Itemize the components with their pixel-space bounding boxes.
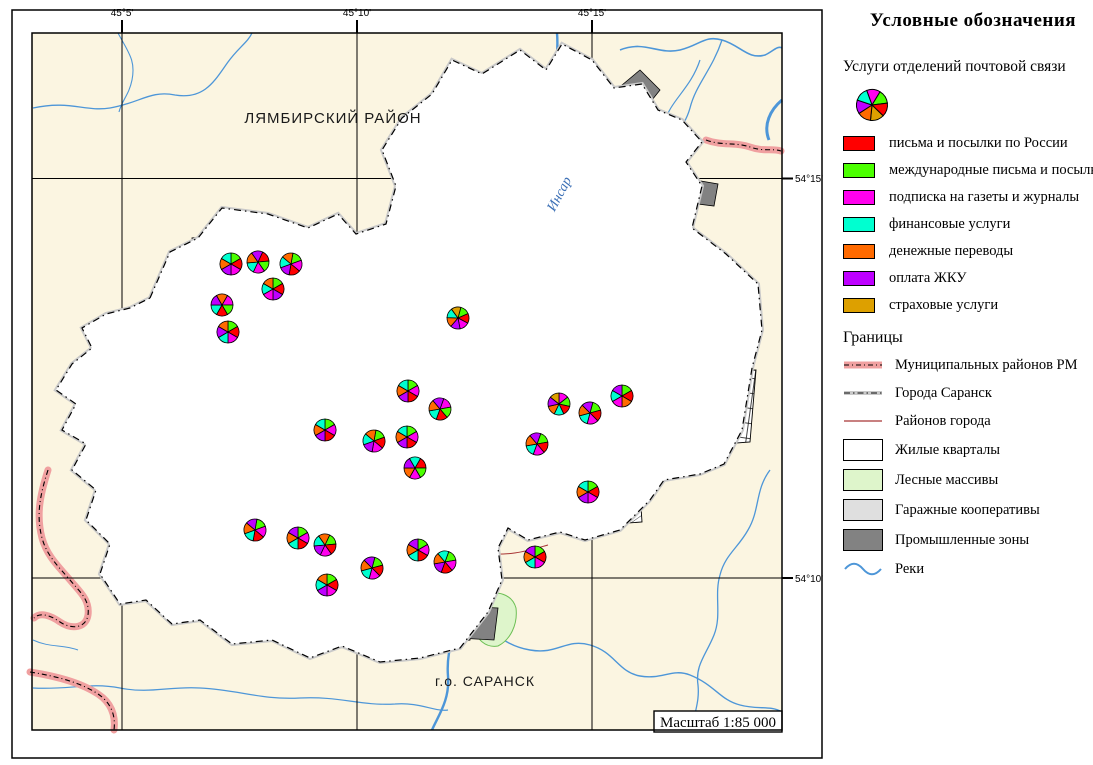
lon-label-3: 45°15' (578, 8, 606, 19)
postal-pie-symbol[interactable] (314, 419, 336, 441)
legend-item-rivers: Реки (843, 559, 1093, 579)
legend-item-subscriptions: подписка на газеты и журналы (843, 190, 1093, 205)
postal-pie-symbol[interactable] (247, 251, 269, 273)
legend-item-residential: Жилые кварталы (843, 439, 1093, 461)
map-canvas[interactable]: ЛЯМБИРСКИЙ РАЙОН г.о. САРАНСК Инсар Масш… (0, 0, 827, 765)
postal-pie-symbol[interactable] (363, 430, 385, 452)
legend-item-district-lines: Районов города (843, 411, 1093, 431)
color-swatch (843, 190, 875, 205)
color-swatch (843, 244, 875, 259)
postal-pie-symbol[interactable] (526, 433, 548, 455)
residential-swatch (843, 439, 883, 461)
postal-pie-symbol[interactable] (316, 574, 338, 596)
color-swatch (843, 163, 875, 178)
postal-pie-symbol[interactable] (217, 321, 239, 343)
legend-title: Условные обозначения (857, 10, 1089, 32)
postal-pie-symbol[interactable] (548, 393, 570, 415)
legend-item-mail-russia: письма и посылки по России (843, 136, 1093, 151)
postal-pie-symbol[interactable] (280, 253, 302, 275)
lat-label-2: 54°10' (795, 574, 823, 585)
postal-pie-symbol[interactable] (314, 534, 336, 556)
map-document-page: ЛЯМБИРСКИЙ РАЙОН г.о. САРАНСК Инсар Масш… (0, 0, 1093, 765)
postal-pie-symbol[interactable] (429, 398, 451, 420)
city-label: г.о. САРАНСК (435, 673, 535, 689)
legend-service-list: письма и посылки по России международные… (827, 136, 1093, 313)
legend-item-municipal-boundary: Муниципальных районов РМ (843, 355, 1093, 375)
postal-pie-symbol[interactable] (577, 481, 599, 503)
lon-label-2: 45°10' (343, 8, 371, 19)
legend-boundaries-title: Границы (843, 329, 1093, 347)
legend-item-city-boundary: Города Саранск (843, 383, 1093, 403)
legend-item-industrial: Промышленные зоны (843, 529, 1093, 551)
municipal-band-sample (843, 360, 883, 370)
forest-swatch (843, 469, 883, 491)
garage-swatch (843, 499, 883, 521)
color-swatch (843, 217, 875, 232)
scale-text: Масштаб 1:85 000 (660, 715, 776, 731)
postal-pie-symbol[interactable] (211, 294, 233, 316)
district-label: ЛЯМБИРСКИЙ РАЙОН (244, 109, 421, 127)
postal-pie-symbol[interactable] (396, 426, 418, 448)
city-dashdot-sample (843, 389, 883, 397)
legend-item-money-transfers: денежные переводы (843, 244, 1093, 259)
legend-item-forest: Лесные массивы (843, 469, 1093, 491)
color-swatch (843, 271, 875, 286)
postal-pie-symbol[interactable] (244, 519, 266, 541)
postal-pie-symbol[interactable] (287, 527, 309, 549)
postal-pie-symbol[interactable] (220, 253, 242, 275)
postal-pie-symbol[interactable] (611, 385, 633, 407)
lon-label-1: 45°5' (111, 8, 134, 19)
color-swatch (843, 298, 875, 313)
scale-box: Масштаб 1:85 000 (654, 711, 782, 732)
district-line-sample (843, 418, 883, 424)
postal-pie-symbol[interactable] (434, 551, 456, 573)
postal-pie-symbol[interactable] (524, 546, 546, 568)
lat-label-1: 54°15' (795, 174, 823, 185)
legend-item-insurance: страховые услуги (843, 298, 1093, 313)
legend-item-utilities: оплата ЖКУ (843, 271, 1093, 286)
river-sample (843, 560, 883, 578)
color-swatch (843, 136, 875, 151)
industrial-swatch (843, 529, 883, 551)
postal-pie-symbol[interactable] (447, 307, 469, 329)
postal-pie-legend-icon (853, 86, 891, 124)
postal-pie-symbol[interactable] (404, 457, 426, 479)
postal-pie-symbol[interactable] (361, 557, 383, 579)
postal-pie-symbol[interactable] (579, 402, 601, 424)
legend-item-mail-international: международные письма и посылки (843, 163, 1093, 178)
legend-item-garage: Гаражные кооперативы (843, 499, 1093, 521)
postal-pie-symbol[interactable] (407, 539, 429, 561)
postal-pie-symbol[interactable] (262, 278, 284, 300)
legend-panel: Условные обозначения Услуги отделений по… (827, 0, 1093, 765)
legend-boundary-list: Муниципальных районов РМ Города Саранск … (827, 355, 1093, 579)
legend-item-financial: финансовые услуги (843, 217, 1093, 232)
postal-pie-symbol[interactable] (397, 380, 419, 402)
legend-subtitle: Услуги отделений почтовой связи (843, 58, 1093, 76)
